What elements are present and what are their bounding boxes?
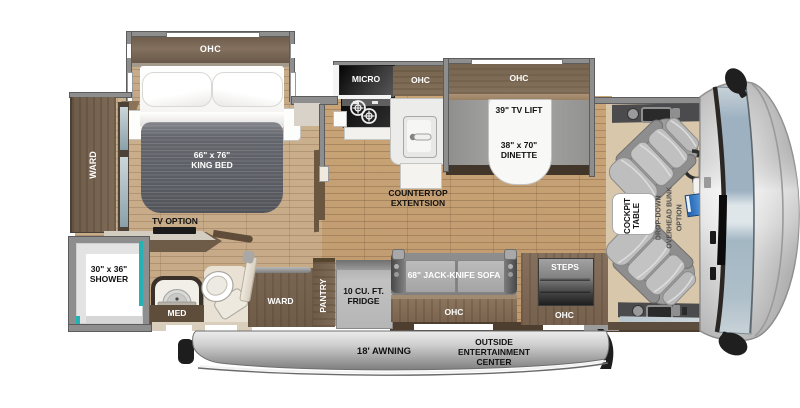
svg-text:CENTER: CENTER [477,357,512,367]
svg-text:ENTERTAINMENT: ENTERTAINMENT [458,347,531,357]
svg-text:18' AWNING: 18' AWNING [357,346,411,357]
svg-text:OUTSIDE: OUTSIDE [475,337,513,347]
